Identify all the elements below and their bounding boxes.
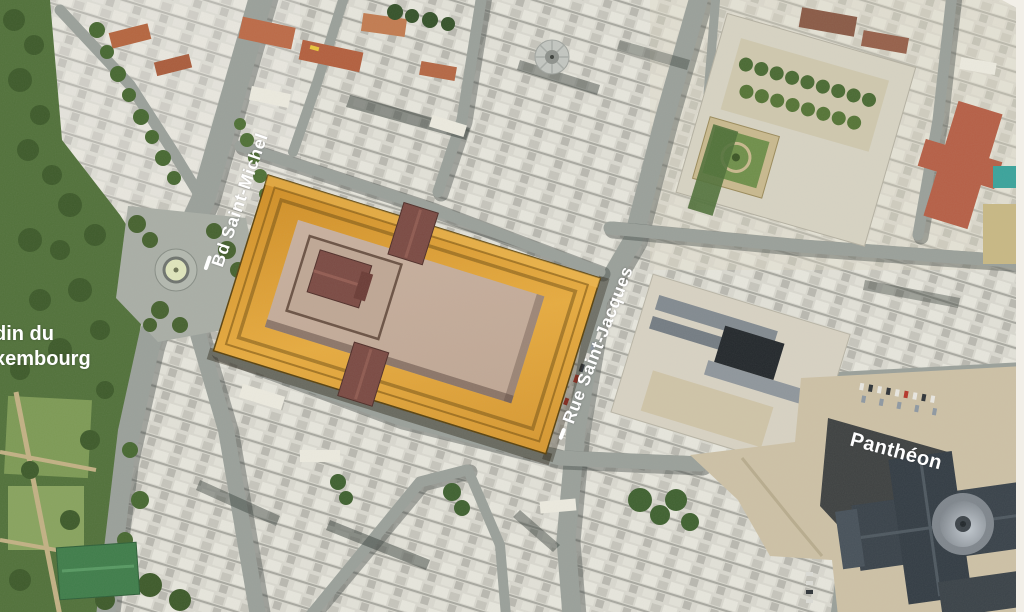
label-jardin-du-luxembourg: din du xembourg	[0, 322, 91, 372]
photo-grain	[0, 0, 1024, 612]
label-jardin-line2: xembourg	[0, 347, 91, 372]
aerial-map: Bd Saint-Michel Rue Saint-Jacques din du…	[0, 0, 1024, 612]
aerial-photo	[0, 0, 1024, 612]
label-jardin-line1: din du	[0, 322, 91, 347]
